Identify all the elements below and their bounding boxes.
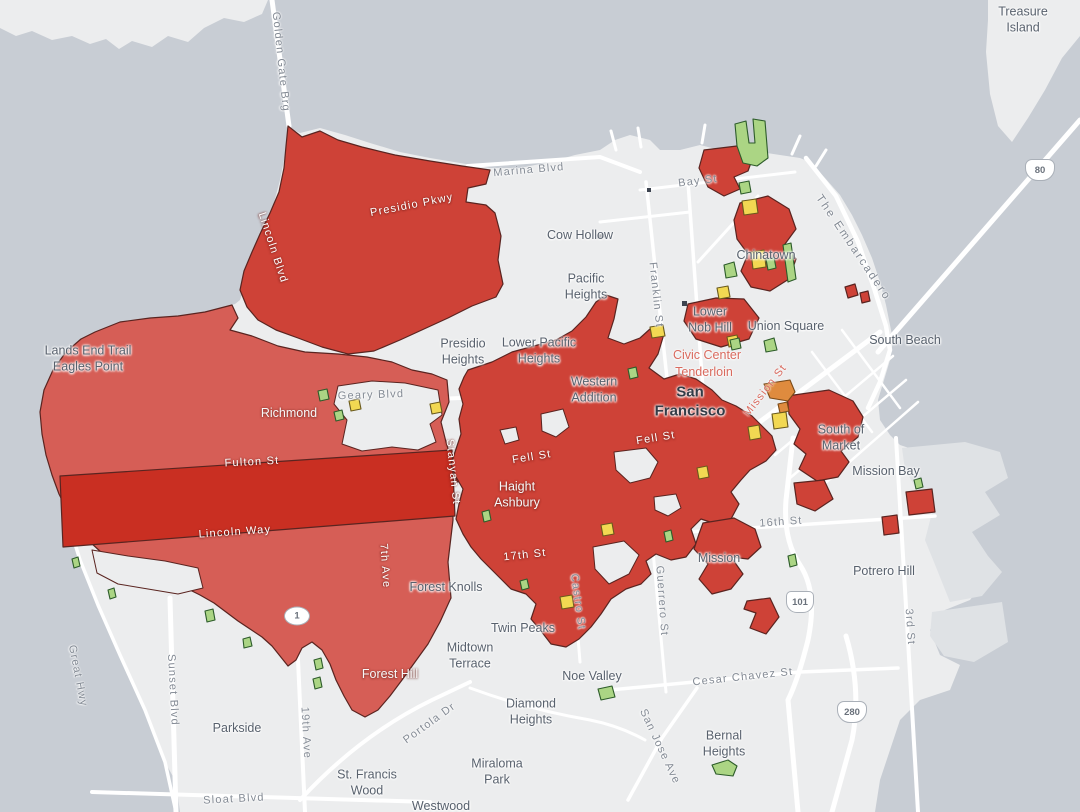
poi-dot-2 xyxy=(682,301,687,306)
zone-green-21 xyxy=(788,554,797,567)
zone-green-14 xyxy=(108,588,116,599)
zone-green-22 xyxy=(664,530,673,542)
zone-yellow-9 xyxy=(430,402,442,414)
zone-mission-bay-1 xyxy=(906,489,935,515)
gap-inner-richmond xyxy=(334,381,442,451)
zone-embarcadero-2 xyxy=(860,291,870,303)
zone-green-8 xyxy=(628,367,638,379)
map-canvas[interactable] xyxy=(0,0,1080,812)
san-francisco-map[interactable]: Golden Gate Brg Treasure Island Marina B… xyxy=(0,0,1080,812)
zone-green-13 xyxy=(72,557,80,568)
zone-green-3 xyxy=(739,181,751,194)
zone-green-11 xyxy=(205,609,215,622)
zone-yellow-11 xyxy=(697,466,709,479)
zone-mission-bay-2 xyxy=(882,515,899,535)
zone-green-12 xyxy=(243,637,252,648)
zone-green-15 xyxy=(314,658,323,670)
zone-green-4 xyxy=(724,262,737,278)
zone-green-16 xyxy=(313,677,322,689)
zone-yellow-10 xyxy=(349,399,361,411)
zone-yellow-8 xyxy=(601,523,614,536)
poi-dot-3 xyxy=(647,188,651,192)
zone-green-5 xyxy=(766,257,776,270)
zone-orange-small xyxy=(778,402,789,413)
zone-yellow-1 xyxy=(742,199,758,215)
zone-green-6 xyxy=(730,338,741,350)
zone-yellow-6 xyxy=(748,425,761,440)
zone-green-7 xyxy=(764,338,777,352)
zone-yellow-4 xyxy=(650,325,665,338)
zone-yellow-5 xyxy=(772,412,788,429)
zone-green-17 xyxy=(482,510,491,522)
zone-yellow-7 xyxy=(560,595,574,609)
zone-green-9 xyxy=(318,389,329,401)
zone-yellow-3 xyxy=(717,286,730,299)
zone-green-noe xyxy=(598,686,615,700)
zone-yellow-2 xyxy=(751,250,766,269)
zone-green-mission-bay xyxy=(914,478,923,489)
zone-embarcadero-1 xyxy=(845,284,858,298)
zone-green-10 xyxy=(334,410,344,421)
zone-green-18 xyxy=(520,579,529,590)
